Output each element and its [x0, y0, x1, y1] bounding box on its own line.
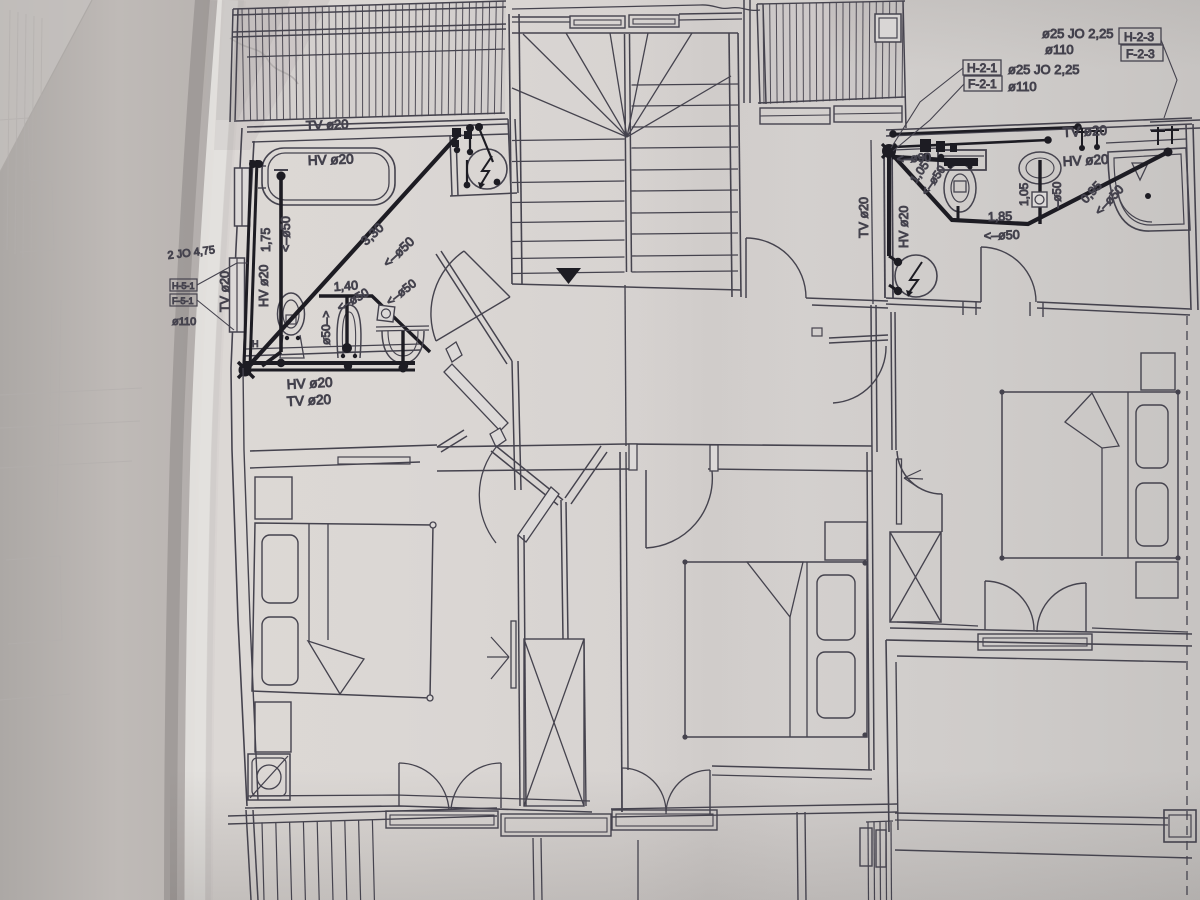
svg-text:1,85: 1,85: [988, 209, 1013, 224]
svg-text:ø50–>: ø50–>: [319, 311, 333, 345]
svg-text:TV ø20: TV ø20: [286, 392, 331, 409]
svg-text:TV ø20: TV ø20: [306, 117, 349, 133]
svg-text:H: H: [252, 339, 259, 349]
svg-text:H-2-1: H-2-1: [967, 61, 997, 75]
svg-text:F-2-3: F-2-3: [1126, 47, 1155, 61]
svg-text:HV ø20: HV ø20: [1062, 152, 1109, 169]
svg-text:F-5-1: F-5-1: [172, 296, 194, 306]
svg-text:HV ø20: HV ø20: [897, 206, 911, 248]
svg-text:ø110: ø110: [1008, 79, 1037, 94]
svg-text:ø25 JO 2,25: ø25 JO 2,25: [1042, 26, 1114, 41]
svg-text:HV ø20: HV ø20: [257, 265, 271, 307]
svg-text:HV ø20: HV ø20: [308, 151, 354, 168]
svg-text:ø110: ø110: [172, 316, 196, 328]
svg-text:<–ø50: <–ø50: [279, 216, 293, 252]
svg-text:–ø50: –ø50: [1052, 182, 1064, 208]
svg-text:<–ø50: <–ø50: [984, 228, 1020, 243]
svg-text:ø25 JO 2,25: ø25 JO 2,25: [1008, 62, 1080, 77]
svg-text:TV ø20: TV ø20: [857, 197, 871, 238]
svg-text:F-2-1: F-2-1: [968, 77, 997, 91]
svg-text:ø110: ø110: [1045, 42, 1074, 57]
svg-text:1,05: 1,05: [1017, 182, 1031, 206]
svg-text:1,75: 1,75: [259, 228, 273, 252]
svg-text:TV ø20: TV ø20: [218, 271, 232, 312]
svg-text:HV ø20: HV ø20: [286, 375, 333, 392]
svg-text:H-5-1: H-5-1: [172, 281, 195, 291]
svg-text:TV ø20: TV ø20: [1062, 123, 1107, 140]
svg-text:<–ø90: <–ø90: [896, 150, 931, 166]
svg-text:H-2-3: H-2-3: [1124, 30, 1154, 44]
